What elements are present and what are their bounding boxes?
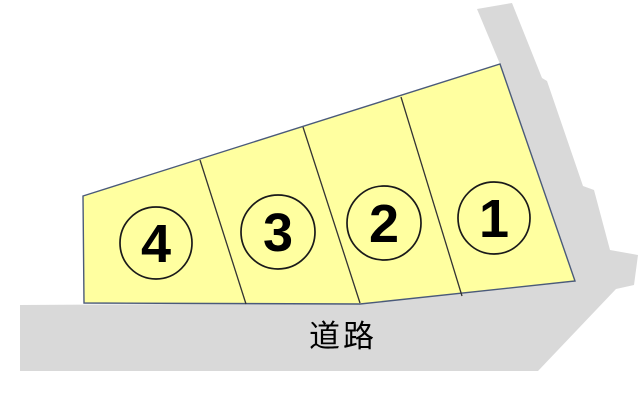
plot-2-number: 2	[369, 194, 399, 254]
road-label: 道路	[309, 319, 377, 354]
plot-map-canvas: 1 2 3 4 道路	[0, 0, 640, 413]
plot-4-number: 4	[141, 214, 171, 274]
plot-1-number: 1	[479, 189, 509, 249]
plot-map-svg: 1 2 3 4 道路	[0, 0, 640, 413]
plot-3-number: 3	[263, 203, 293, 263]
